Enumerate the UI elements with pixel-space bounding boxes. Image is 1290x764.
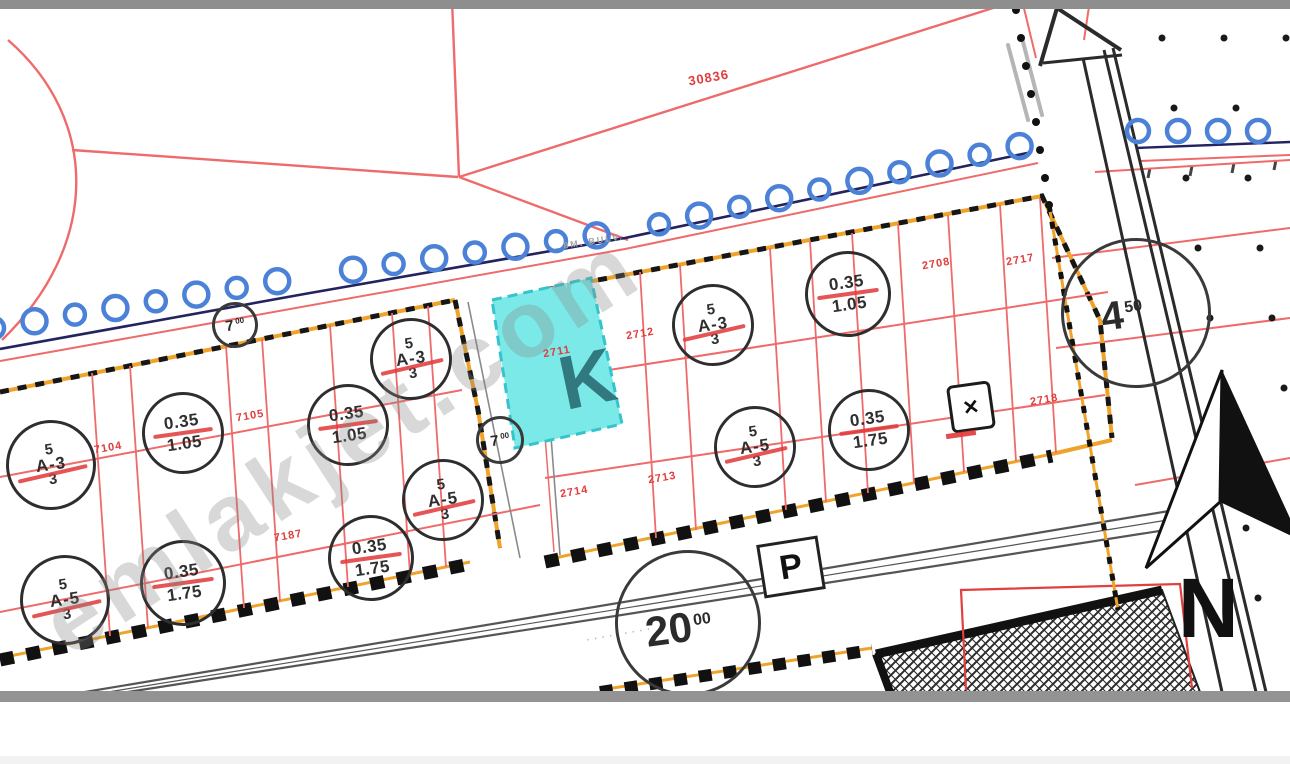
park-dot <box>1159 35 1166 42</box>
north-letter: N <box>1178 566 1239 650</box>
park-dot <box>1183 175 1190 182</box>
park-dot <box>1195 245 1202 252</box>
footer-strip <box>0 756 1290 764</box>
tree-symbol <box>384 254 404 274</box>
park-dot <box>1281 385 1288 392</box>
trafo-icon: ✕ <box>946 380 996 434</box>
park-dot <box>1257 245 1264 252</box>
tree-symbol <box>1247 120 1269 142</box>
tree-symbol <box>422 246 446 270</box>
tree-symbol <box>503 235 527 259</box>
north-arrow-icon <box>1146 370 1290 568</box>
park-dot <box>1233 105 1240 112</box>
park-dot <box>1221 35 1228 42</box>
tree-symbol <box>23 309 47 333</box>
tree-symbol <box>341 258 365 282</box>
tree-symbol <box>265 269 289 293</box>
tree-symbol <box>184 283 208 307</box>
park-dot <box>1283 35 1290 42</box>
parking-symbol: P <box>756 535 826 598</box>
park-dot <box>1245 175 1252 182</box>
tree-symbol <box>1207 120 1229 142</box>
tree-symbol <box>1167 120 1189 142</box>
letterbox-bar-top <box>0 0 1290 9</box>
tree-symbol <box>65 305 85 325</box>
tree-symbol <box>227 278 247 298</box>
tree-symbol <box>103 296 127 320</box>
park-dot <box>1255 595 1262 602</box>
footer-whitespace <box>0 702 1290 764</box>
letterbox-bar-bottom <box>0 691 1290 702</box>
tree-symbol <box>1127 120 1149 142</box>
tree-symbol <box>465 243 485 263</box>
zoning-block-right <box>545 196 1112 562</box>
tree-symbol <box>146 291 166 311</box>
park-dot <box>1269 315 1276 322</box>
park-dot <box>1171 105 1178 112</box>
park-dot <box>1243 525 1250 532</box>
zoning-plan-screenshot: 5A-330.351.050.351.055A-335A-530.351.750… <box>0 0 1290 764</box>
tree-symbol <box>0 318 4 338</box>
tree-symbol <box>687 204 711 228</box>
